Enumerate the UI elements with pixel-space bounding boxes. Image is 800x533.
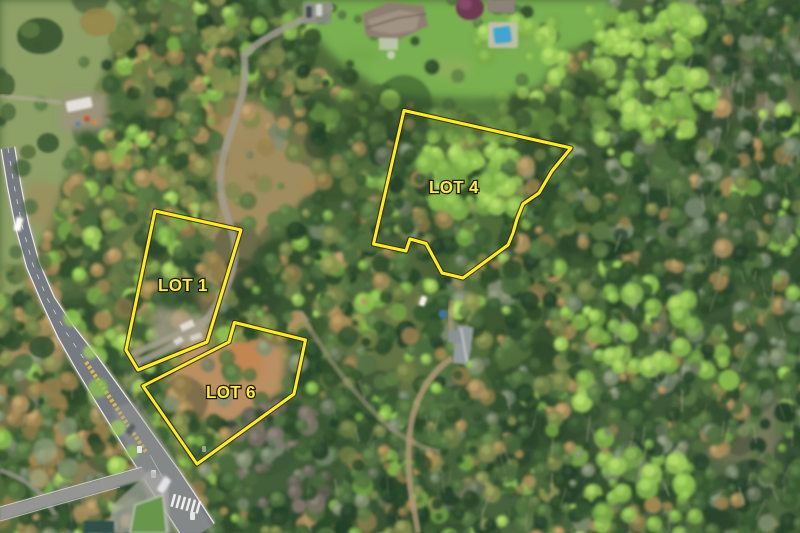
svg-text:LOT 6: LOT 6 [206, 383, 256, 402]
svg-text:LOT 4: LOT 4 [429, 178, 479, 197]
svg-text:LOT 1: LOT 1 [158, 276, 208, 295]
